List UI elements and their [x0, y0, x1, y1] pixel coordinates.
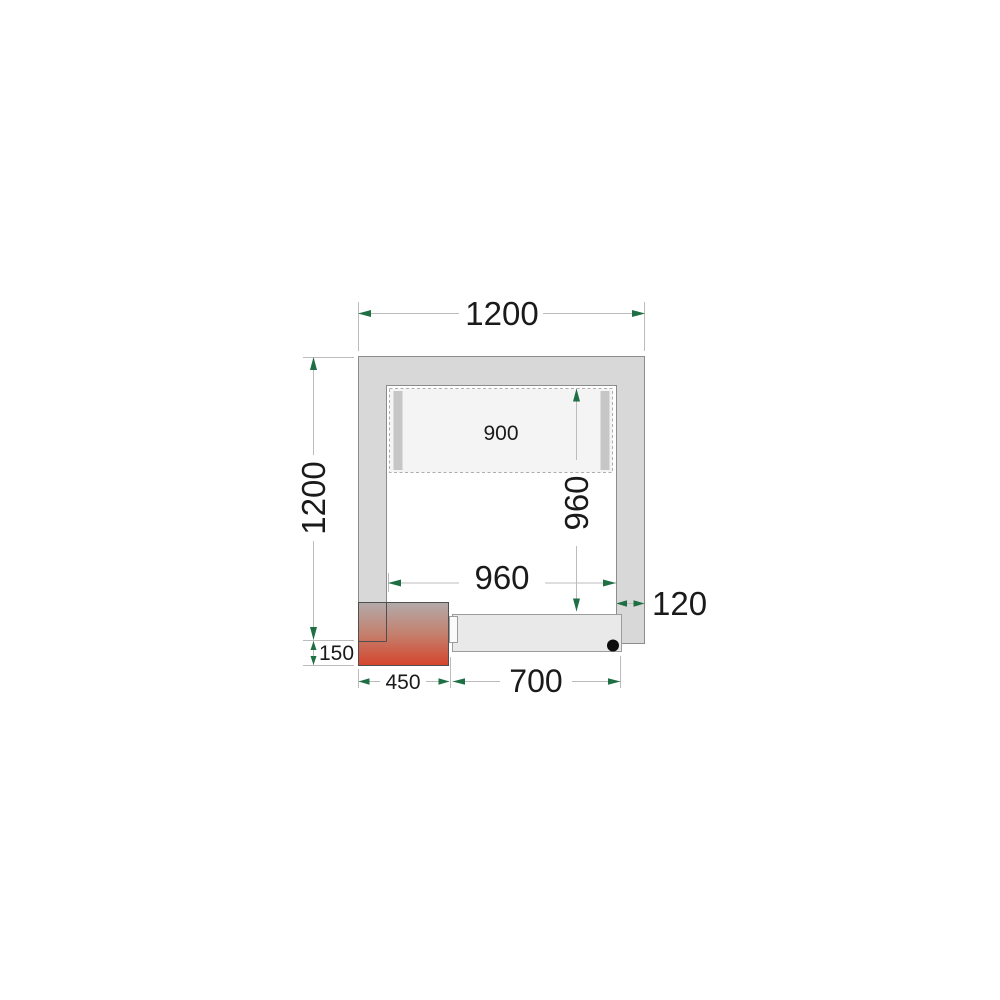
door-panel — [450, 615, 622, 652]
dim-outer-depth: 1200 — [295, 357, 354, 641]
arrow-left-icon — [358, 310, 371, 317]
door-frame-step — [450, 617, 458, 643]
corner-unit-width-label: 450 — [385, 671, 420, 694]
dim-door-width: 700 — [453, 656, 621, 699]
inner-width-label: 960 — [474, 559, 529, 596]
arrow-left-icon — [359, 678, 370, 685]
outer-depth-label: 1200 — [295, 461, 332, 534]
door-hinge-dot — [607, 640, 619, 652]
corner-offset-label: 150 — [319, 642, 354, 665]
arrow-right-icon — [608, 678, 621, 685]
evaporator-end-left — [394, 391, 403, 470]
door-width-label: 700 — [509, 663, 562, 699]
outer-width-label: 1200 — [465, 295, 538, 332]
floor-plan-svg: 900 1200 1200 150 960 — [0, 0, 1000, 1000]
inner-depth-label: 960 — [558, 475, 595, 530]
drawing-canvas: 900 1200 1200 150 960 — [0, 0, 1000, 1000]
heater-zone — [359, 603, 449, 666]
evaporator-width-label: 900 — [483, 422, 518, 445]
arrow-right-icon — [603, 580, 616, 587]
wall-thickness-label: 120 — [652, 585, 707, 622]
dim-corner-offset: 150 — [303, 641, 354, 666]
arrow-right-icon — [439, 678, 450, 685]
arrow-down-icon — [573, 599, 580, 612]
arrow-left-icon — [388, 580, 401, 587]
arrow-right-icon — [632, 310, 645, 317]
arrow-left-icon — [453, 678, 466, 685]
arrow-down-icon — [311, 656, 317, 665]
evaporator-end-right — [601, 391, 610, 470]
arrow-up-icon — [311, 641, 317, 650]
dim-outer-width: 1200 — [358, 295, 645, 351]
arrow-up-icon — [310, 357, 317, 370]
arrow-down-icon — [310, 627, 317, 640]
dim-inner-width: 960 — [388, 559, 616, 596]
